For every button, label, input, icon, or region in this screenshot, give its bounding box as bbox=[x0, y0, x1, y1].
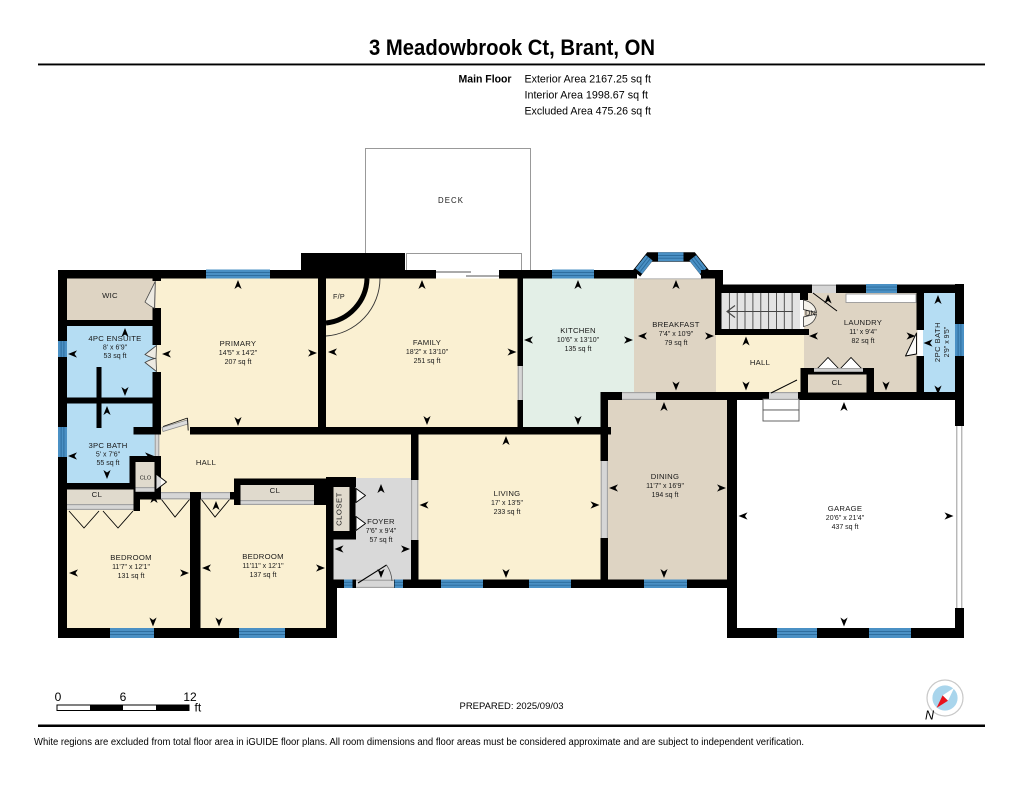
svg-text:Excluded Area 475.26 sq ft: Excluded Area 475.26 sq ft bbox=[525, 106, 652, 118]
svg-text:251 sq ft: 251 sq ft bbox=[414, 358, 441, 365]
svg-text:137 sq ft: 137 sq ft bbox=[250, 572, 277, 579]
svg-text:LAUNDRY: LAUNDRY bbox=[844, 318, 882, 327]
svg-text:194 sq ft: 194 sq ft bbox=[652, 492, 679, 499]
svg-text:KITCHEN: KITCHEN bbox=[560, 326, 596, 335]
svg-text:7'4" x 10'9": 7'4" x 10'9" bbox=[659, 331, 694, 338]
svg-text:BREAKFAST: BREAKFAST bbox=[652, 320, 700, 329]
svg-text:0: 0 bbox=[55, 690, 62, 704]
svg-text:233 sq ft: 233 sq ft bbox=[494, 509, 521, 516]
svg-text:79 sq ft: 79 sq ft bbox=[665, 340, 688, 347]
svg-text:N: N bbox=[925, 709, 935, 723]
svg-text:11' x 9'4": 11' x 9'4" bbox=[849, 329, 877, 336]
svg-text:6: 6 bbox=[120, 690, 127, 704]
svg-text:F/P: F/P bbox=[333, 292, 345, 301]
svg-text:18'2" x 13'10": 18'2" x 13'10" bbox=[406, 349, 449, 356]
svg-text:CLO: CLO bbox=[140, 476, 152, 482]
svg-text:17' x 13'5": 17' x 13'5" bbox=[491, 500, 524, 507]
svg-text:82 sq ft: 82 sq ft bbox=[852, 338, 875, 345]
svg-text:5' x 7'6": 5' x 7'6" bbox=[96, 452, 121, 459]
svg-text:CL: CL bbox=[832, 378, 843, 387]
svg-text:Exterior Area 2167.25 sq ft: Exterior Area 2167.25 sq ft bbox=[525, 74, 652, 86]
svg-text:BEDROOM: BEDROOM bbox=[242, 552, 283, 561]
svg-text:DN: DN bbox=[805, 309, 816, 318]
svg-text:ft: ft bbox=[195, 701, 202, 715]
svg-text:57 sq ft: 57 sq ft bbox=[370, 537, 393, 544]
svg-text:CL: CL bbox=[270, 486, 281, 495]
svg-text:7'6" x 9'4": 7'6" x 9'4" bbox=[366, 528, 397, 535]
svg-text:8' x 6'9": 8' x 6'9" bbox=[103, 345, 128, 352]
svg-text:CLOSET: CLOSET bbox=[335, 492, 344, 526]
svg-text:11'11" x 12'1": 11'11" x 12'1" bbox=[242, 563, 284, 570]
svg-text:WIC: WIC bbox=[102, 291, 118, 300]
svg-text:DINING: DINING bbox=[651, 472, 679, 481]
svg-text:BEDROOM: BEDROOM bbox=[110, 553, 151, 562]
svg-text:Main Floor: Main Floor bbox=[459, 74, 513, 86]
svg-text:2PC BATH: 2PC BATH bbox=[933, 322, 942, 362]
svg-text:GARAGE: GARAGE bbox=[828, 504, 862, 513]
svg-text:11'7" x 16'9": 11'7" x 16'9" bbox=[646, 483, 684, 490]
svg-text:437 sq ft: 437 sq ft bbox=[832, 524, 859, 531]
svg-text:3PC BATH: 3PC BATH bbox=[88, 441, 127, 450]
svg-text:White regions are excluded fro: White regions are excluded from total fl… bbox=[34, 737, 804, 748]
svg-text:131 sq ft: 131 sq ft bbox=[118, 573, 145, 580]
svg-text:207 sq ft: 207 sq ft bbox=[225, 359, 252, 366]
svg-text:CL: CL bbox=[92, 490, 103, 499]
svg-text:4PC ENSUITE: 4PC ENSUITE bbox=[88, 334, 141, 343]
svg-text:55 sq ft: 55 sq ft bbox=[97, 460, 120, 467]
svg-text:14'5" x 14'2": 14'5" x 14'2" bbox=[219, 350, 258, 357]
svg-text:53 sq ft: 53 sq ft bbox=[104, 353, 127, 360]
svg-text:FAMILY: FAMILY bbox=[413, 338, 441, 347]
svg-text:20'6" x 21'4": 20'6" x 21'4" bbox=[826, 515, 865, 522]
svg-text:2'9" x 9'5": 2'9" x 9'5" bbox=[944, 326, 951, 357]
svg-text:3 Meadowbrook Ct, Brant, ON: 3 Meadowbrook Ct, Brant, ON bbox=[369, 35, 655, 60]
svg-text:10'6" x 13'10": 10'6" x 13'10" bbox=[557, 337, 600, 344]
svg-text:HALL: HALL bbox=[196, 458, 217, 467]
svg-text:11'7" x 12'1": 11'7" x 12'1" bbox=[112, 564, 150, 571]
svg-text:PRIMARY: PRIMARY bbox=[220, 339, 257, 348]
svg-text:PREPARED: 2025/09/03: PREPARED: 2025/09/03 bbox=[460, 701, 564, 712]
svg-text:HALL: HALL bbox=[750, 358, 771, 367]
svg-text:LIVING: LIVING bbox=[494, 489, 521, 498]
svg-text:Interior Area 1998.67 sq ft: Interior Area 1998.67 sq ft bbox=[525, 90, 649, 102]
svg-text:135 sq ft: 135 sq ft bbox=[565, 346, 592, 353]
svg-text:DECK: DECK bbox=[438, 196, 464, 205]
svg-text:FOYER: FOYER bbox=[367, 517, 395, 526]
